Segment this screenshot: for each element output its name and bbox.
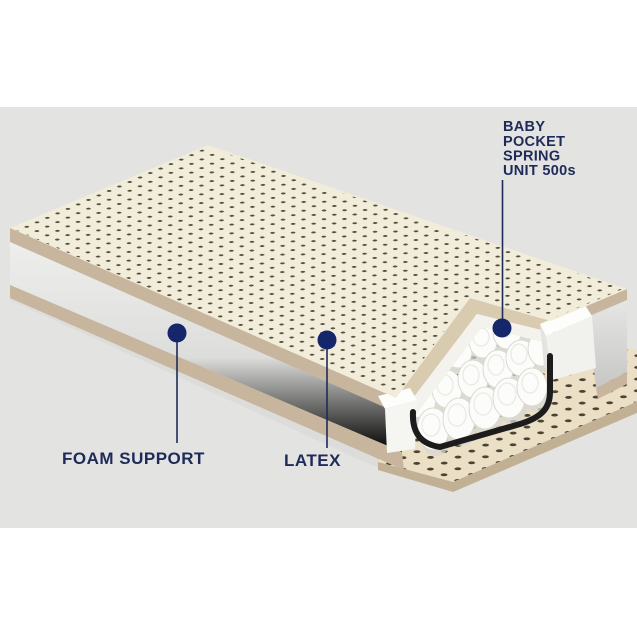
diagram-canvas: BABY POCKET SPRING UNIT 500s FOAM SUPPOR… [0, 0, 637, 637]
mattress-cutaway-diagram: BABY POCKET SPRING UNIT 500s FOAM SUPPOR… [0, 0, 637, 637]
foam-support-label: FOAM SUPPORT [62, 449, 205, 468]
foam-support-marker-dot [168, 324, 187, 343]
spring-unit-marker-dot [493, 319, 512, 338]
latex-marker-dot [318, 331, 337, 350]
latex-label: LATEX [284, 451, 341, 470]
